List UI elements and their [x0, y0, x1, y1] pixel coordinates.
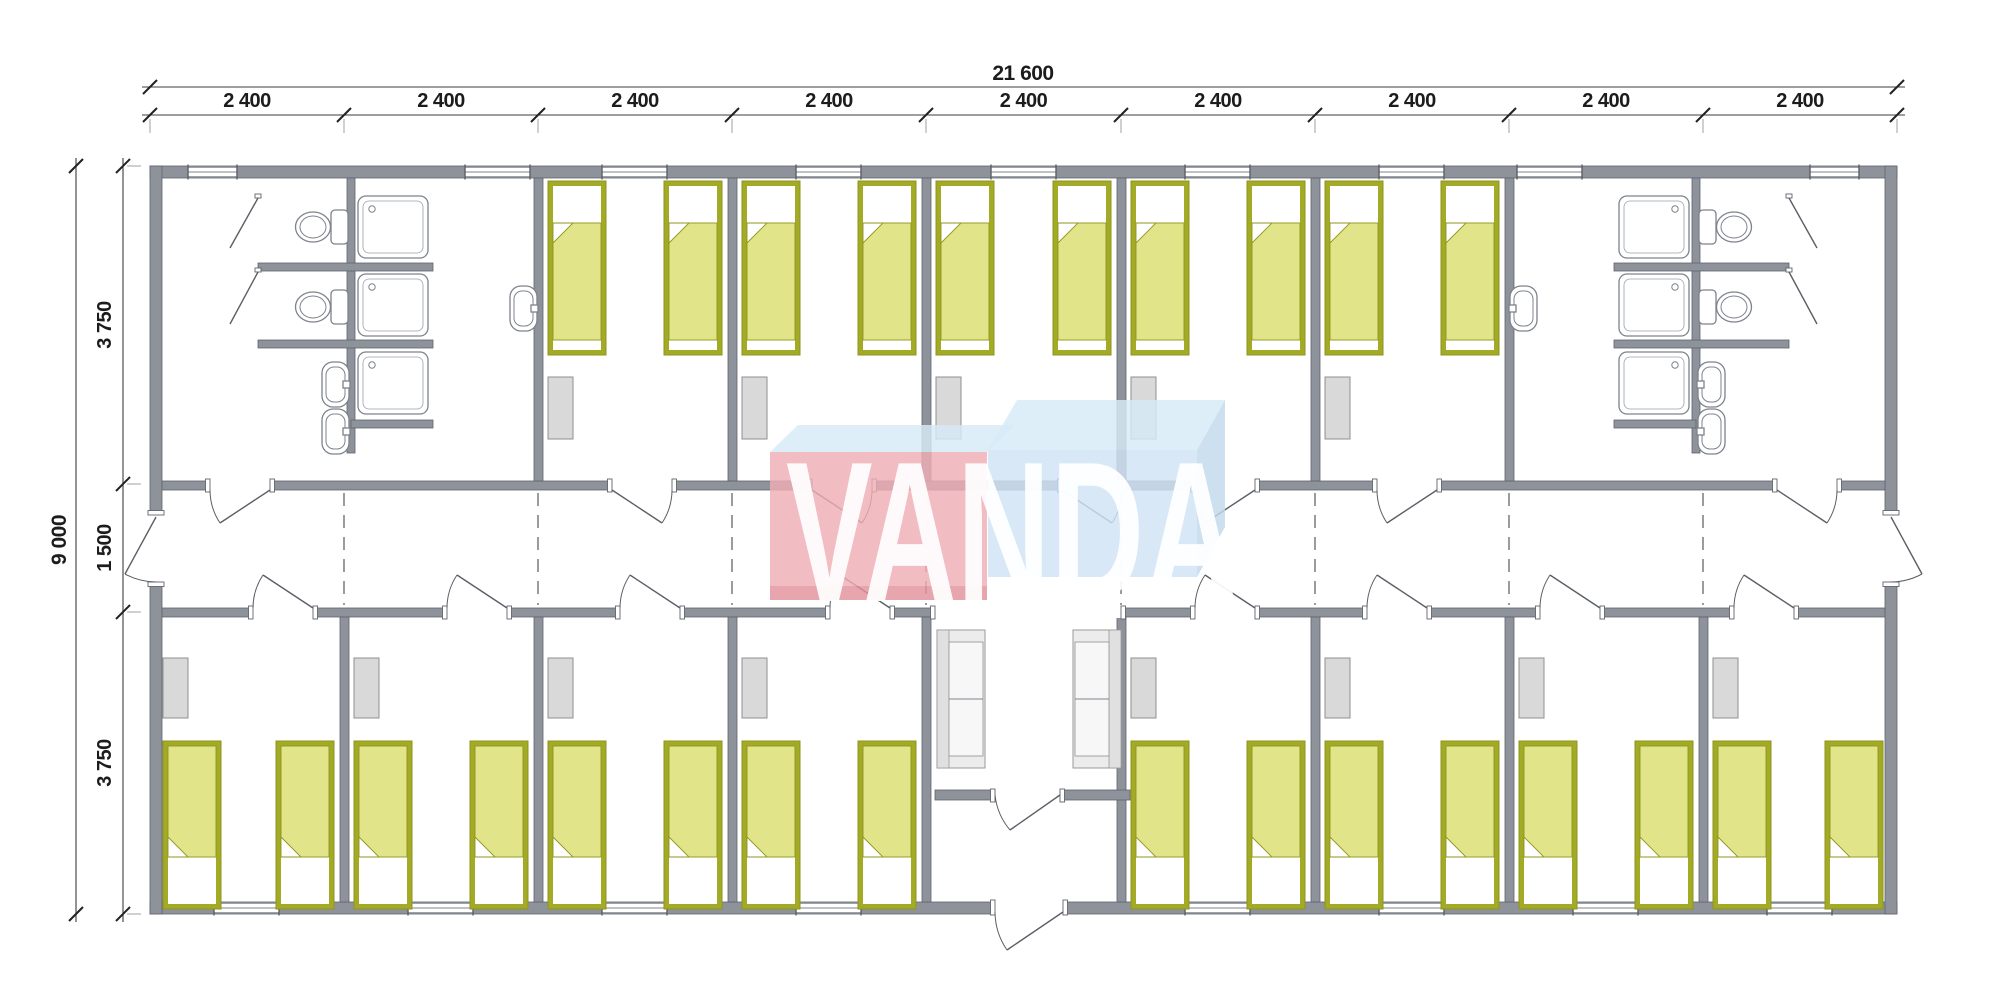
room-divider-wall	[728, 617, 737, 902]
door-jamb	[991, 789, 996, 802]
door-jamb	[1363, 606, 1368, 619]
door-swing-arc	[1734, 575, 1744, 608]
dimension-segment-label: 2 400	[223, 90, 271, 112]
bed	[858, 741, 916, 909]
toilet-stall-wall	[258, 263, 433, 271]
washbasin	[322, 409, 350, 454]
room-divider-wall	[1505, 617, 1514, 902]
door-swing-arc	[1827, 490, 1837, 523]
floor-plan-drawing: VANDA 21 600 9 000 2 4002 4002 4002 4002…	[0, 0, 2000, 999]
dimension-segment-label: 2 400	[1000, 90, 1048, 112]
bed	[548, 181, 606, 355]
door-opening	[1540, 607, 1600, 618]
bed	[548, 741, 606, 909]
washbasin	[1697, 409, 1725, 454]
room-divider-wall	[340, 617, 349, 902]
door-jamb	[1730, 606, 1735, 619]
dimension-segment-label: 2 400	[1194, 90, 1242, 112]
shower-tray	[1619, 274, 1689, 336]
bed	[1713, 741, 1771, 909]
door-opening	[620, 607, 680, 618]
toilet-stall-wall	[1614, 340, 1789, 348]
door-leaf	[1387, 490, 1437, 523]
door-jamb	[206, 479, 211, 492]
shower-tray	[358, 274, 428, 336]
shower-tray	[358, 196, 428, 258]
toilet	[296, 290, 349, 324]
entrance-door-leaf	[1007, 912, 1063, 950]
door-jamb	[608, 479, 613, 492]
door-swing-arc	[995, 795, 1010, 830]
wardrobe	[1519, 658, 1544, 718]
door-jamb	[507, 606, 512, 619]
door-jamb	[443, 606, 448, 619]
door-opening	[447, 607, 507, 618]
door-jamb	[255, 194, 261, 198]
wardrobe	[548, 377, 573, 439]
door-jamb	[1255, 479, 1260, 492]
room-divider-wall	[534, 178, 543, 481]
toilet-stall-wall	[1614, 263, 1789, 271]
bed	[1131, 181, 1189, 355]
room-divider-wall	[922, 617, 931, 902]
door-leaf	[220, 490, 270, 523]
shower-stub-wall	[351, 420, 433, 428]
watermark-text: VANDA	[786, 421, 1238, 644]
wardrobe	[163, 658, 188, 718]
door-swing-arc	[1377, 490, 1387, 523]
door-jamb	[270, 479, 275, 492]
bed	[858, 181, 916, 355]
wardrobe	[354, 658, 379, 718]
washbasin	[322, 362, 350, 407]
toilet	[1699, 210, 1752, 244]
door-jamb	[255, 268, 261, 272]
door-jamb	[148, 582, 164, 587]
door-jamb	[313, 606, 318, 619]
bed	[1635, 741, 1693, 909]
door-jamb	[1883, 582, 1899, 587]
toilet	[296, 210, 349, 244]
door-opening	[1777, 480, 1837, 491]
door-jamb	[1063, 900, 1068, 915]
bed	[1441, 181, 1499, 355]
dimension-segment-label: 1 500	[94, 524, 116, 572]
door-leaf	[612, 490, 662, 523]
bed	[470, 741, 528, 909]
bed	[1825, 741, 1883, 909]
wardrobe	[1325, 377, 1350, 439]
bed	[1325, 741, 1383, 909]
door-leaf	[630, 575, 680, 608]
room-divider-wall	[1505, 178, 1514, 481]
door-leaf	[1377, 575, 1427, 608]
door-jamb	[1837, 479, 1842, 492]
door-jamb	[1773, 479, 1778, 492]
toilet	[1699, 290, 1752, 324]
shower-tray	[358, 352, 428, 414]
bed	[664, 741, 722, 909]
door-jamb	[1794, 606, 1799, 619]
stall-door-leaf	[230, 198, 258, 248]
door-opening	[1367, 607, 1427, 618]
door-opening	[1377, 480, 1437, 491]
door-swing-arc	[210, 490, 220, 523]
door-jamb	[1373, 479, 1378, 492]
vestibule-partition-wall	[935, 790, 995, 800]
wardrobe	[1713, 658, 1738, 718]
door-opening	[1734, 607, 1794, 618]
bed	[1247, 741, 1305, 909]
door-leaf	[1010, 795, 1060, 830]
watermark-logo: VANDA	[770, 400, 1238, 644]
toilet-stall-wall	[258, 340, 433, 348]
bed	[1053, 181, 1111, 355]
washbasin	[1509, 286, 1537, 331]
door-swing-arc	[620, 575, 630, 608]
washbasin	[510, 286, 538, 331]
bed	[1247, 181, 1305, 355]
wardrobe	[548, 658, 573, 718]
door-jamb	[680, 606, 685, 619]
entrance-door-opening	[995, 901, 1063, 915]
dimension-segment-label: 2 400	[1582, 90, 1630, 112]
dimension-segment-label: 2 400	[611, 90, 659, 112]
room-divider-wall	[1699, 617, 1708, 902]
door-opening	[612, 480, 672, 491]
door-leaf	[263, 575, 313, 608]
door-jamb	[1255, 606, 1260, 619]
door-swing-arc	[1367, 575, 1377, 608]
door-jamb	[148, 511, 164, 516]
door-jamb	[991, 900, 996, 915]
room-divider-wall	[1311, 178, 1320, 481]
dimension-overall-width: 21 600	[992, 62, 1053, 85]
wardrobe	[742, 377, 767, 439]
room-divider-wall	[728, 178, 737, 481]
door-jamb	[1427, 606, 1432, 619]
dimension-segment-label: 3 750	[94, 301, 116, 349]
door-swing-arc	[1540, 575, 1550, 608]
bed	[664, 181, 722, 355]
door-jamb	[1060, 789, 1065, 802]
door-jamb	[1437, 479, 1442, 492]
dimension-overall-height: 9 000	[48, 515, 71, 565]
door-swing-arc	[662, 490, 672, 523]
door-leaf	[1777, 490, 1827, 523]
dimension-segment-label: 3 750	[94, 739, 116, 787]
dimension-segment-label: 2 400	[805, 90, 853, 112]
door-leaf	[1744, 575, 1794, 608]
wardrobe	[1131, 658, 1156, 718]
door-leaf	[457, 575, 507, 608]
stall-door-leaf	[1789, 272, 1817, 324]
door-jamb	[672, 479, 677, 492]
bed	[936, 181, 994, 355]
bed	[1325, 181, 1383, 355]
dimension-segment-label: 2 400	[1776, 90, 1824, 112]
dimension-segment-label: 2 400	[417, 90, 465, 112]
bed	[163, 741, 221, 909]
washbasin	[1697, 362, 1725, 407]
door-swing-arc	[995, 912, 1007, 950]
stall-door-leaf	[1789, 198, 1817, 248]
dimension-segment-label: 2 400	[1388, 90, 1436, 112]
bed	[276, 741, 334, 909]
bed	[354, 741, 412, 909]
door-jamb	[1883, 511, 1899, 516]
bed	[1441, 741, 1499, 909]
bed	[1519, 741, 1577, 909]
door-jamb	[1786, 194, 1792, 198]
bed	[1131, 741, 1189, 909]
door-opening	[253, 607, 313, 618]
floor-plan-page: VANDA 21 600 9 000 2 4002 4002 4002 4002…	[0, 0, 2000, 999]
shower-tray	[1619, 352, 1689, 414]
bed	[742, 741, 800, 909]
wardrobe	[1325, 658, 1350, 718]
door-jamb	[616, 606, 621, 619]
bed	[742, 181, 800, 355]
door-opening	[210, 480, 270, 491]
room-divider-wall	[534, 617, 543, 902]
door-swing-arc	[447, 575, 457, 608]
room-divider-wall	[1311, 617, 1320, 902]
vestibule-partition-wall	[1060, 790, 1130, 800]
door-swing-arc	[253, 575, 263, 608]
door-leaf	[1550, 575, 1600, 608]
door-jamb	[1536, 606, 1541, 619]
stall-door-leaf	[230, 272, 258, 324]
shower-stub-wall	[1614, 420, 1696, 428]
shower-tray	[1619, 196, 1689, 258]
door-jamb	[1786, 268, 1792, 272]
door-jamb	[249, 606, 254, 619]
wardrobe	[742, 658, 767, 718]
door-jamb	[1600, 606, 1605, 619]
